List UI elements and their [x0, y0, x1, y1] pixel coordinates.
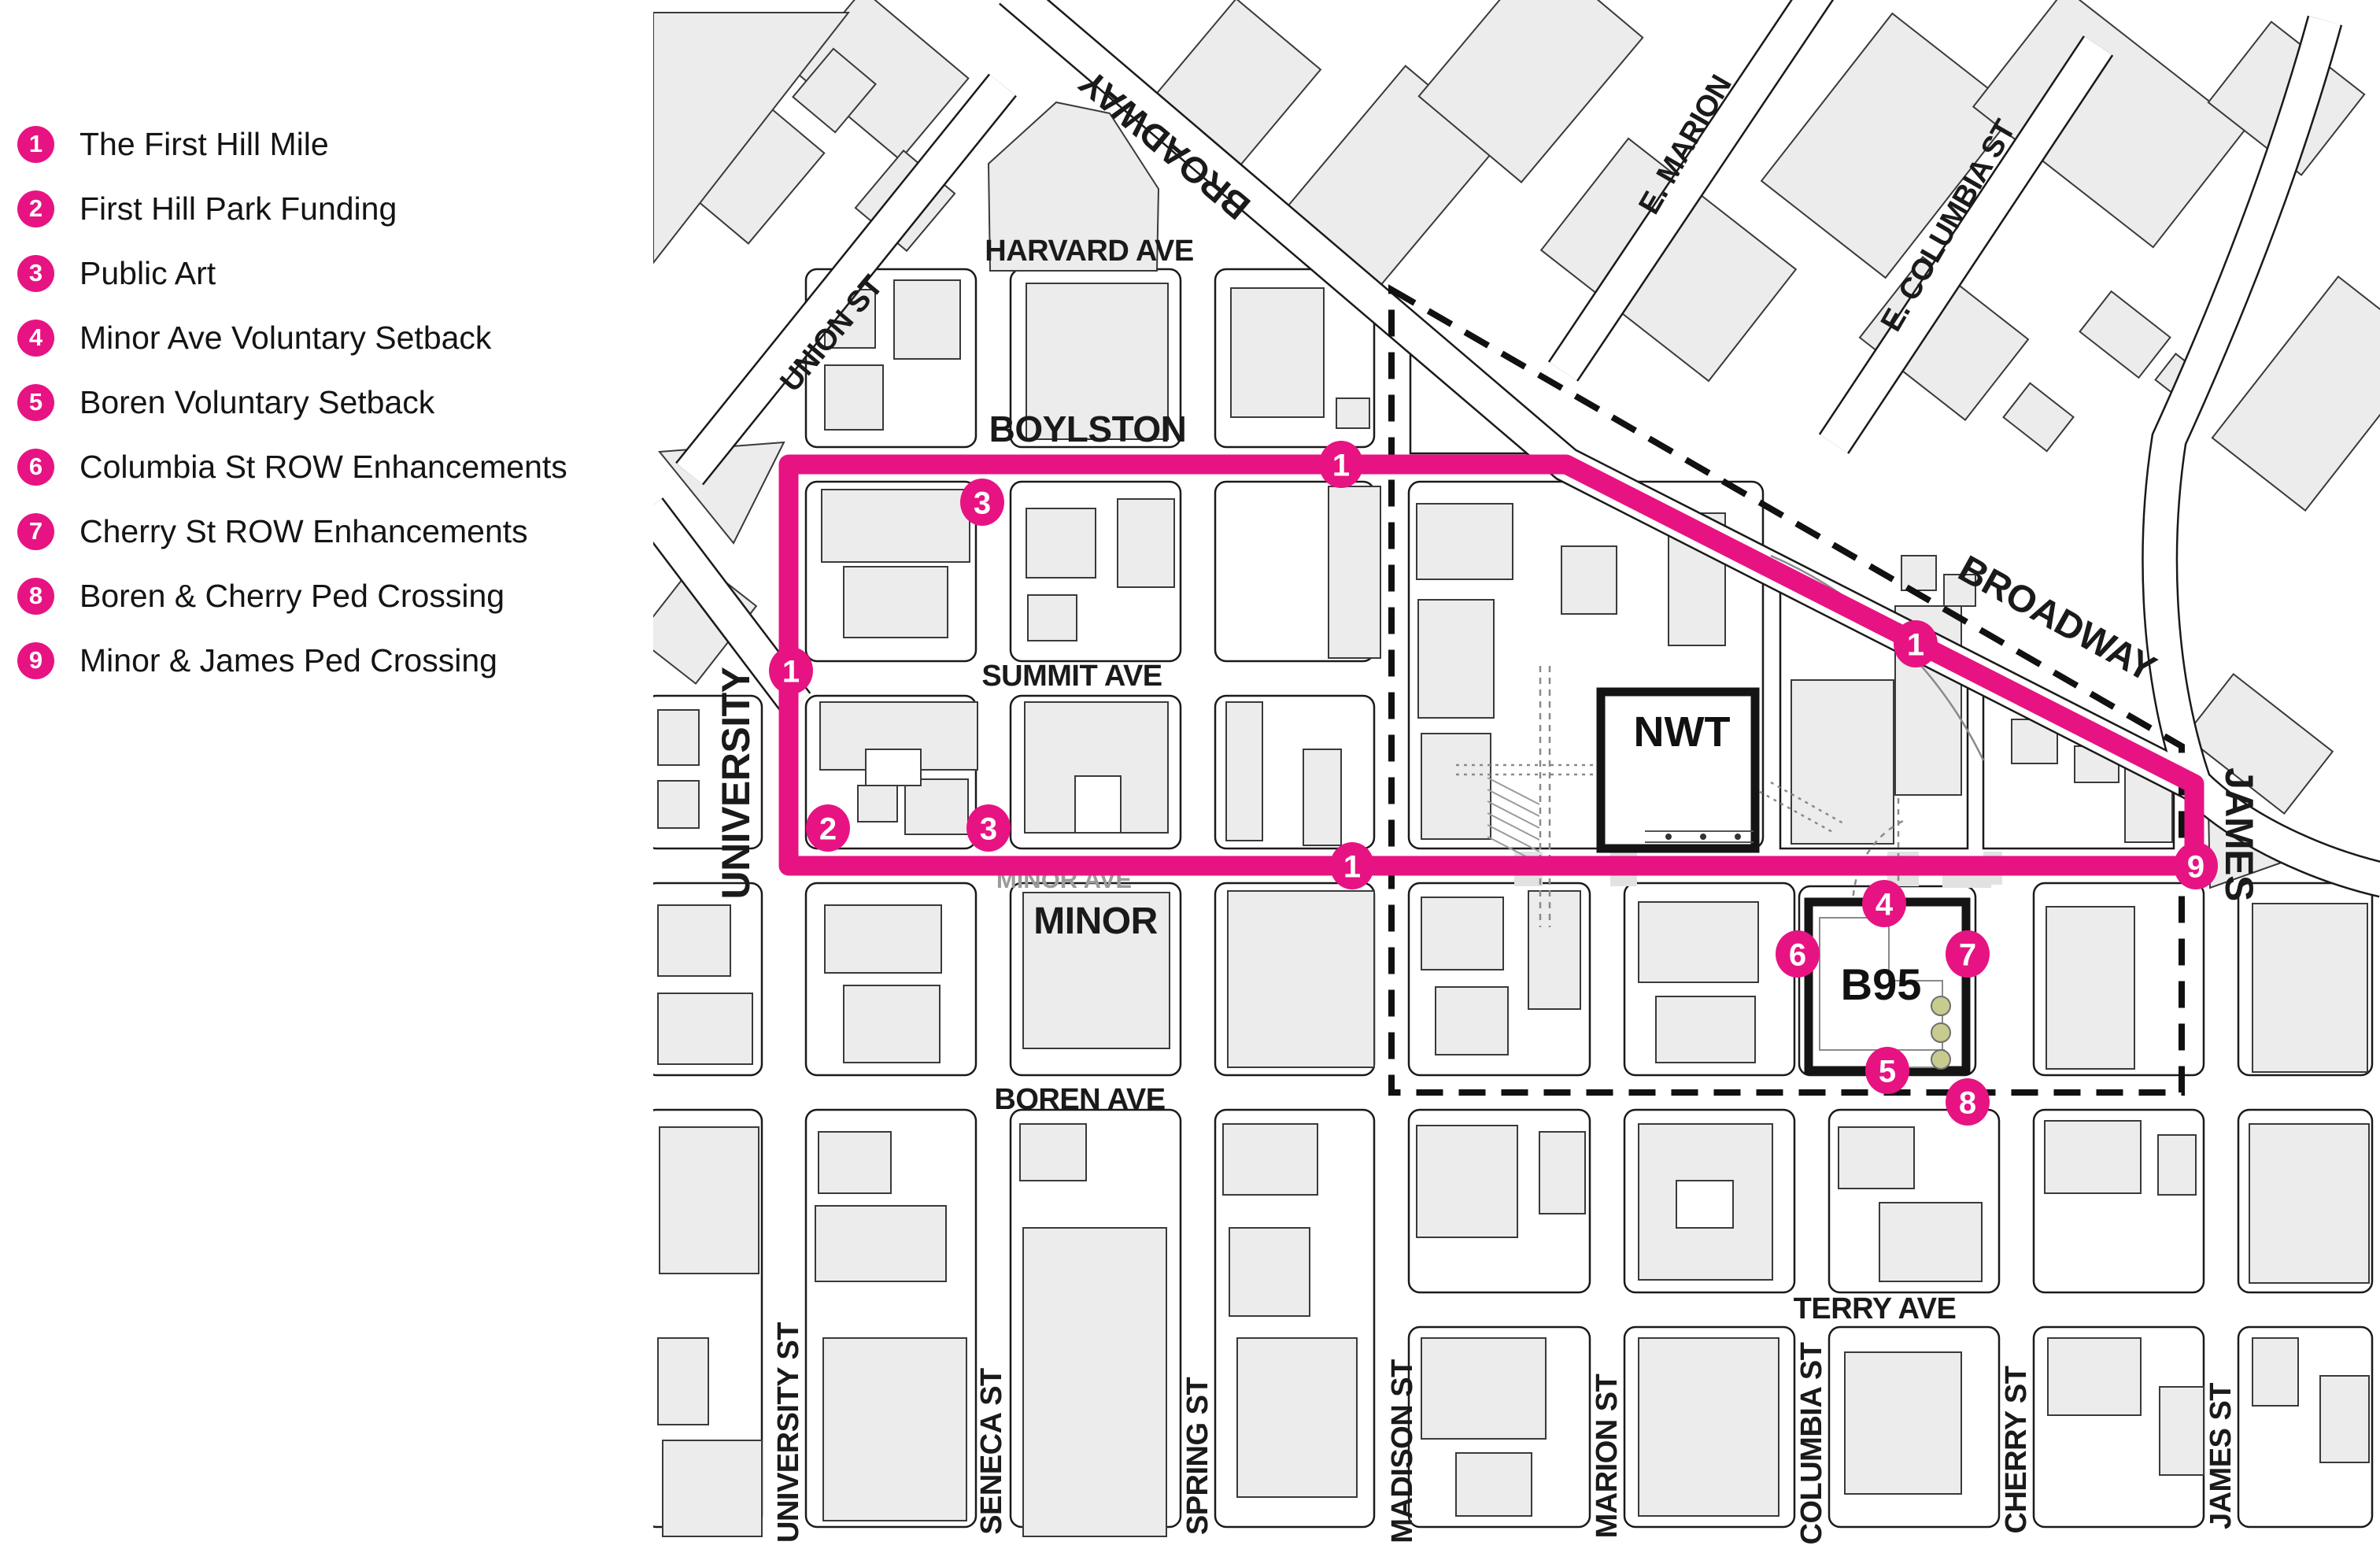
building [1226, 702, 1262, 841]
building [825, 365, 883, 430]
badge-number: 6 [1789, 937, 1806, 972]
building [658, 781, 699, 828]
building [1456, 1453, 1532, 1516]
building [2252, 1338, 2298, 1406]
building [1973, 0, 2245, 247]
building [1421, 897, 1503, 970]
map-badge-1: 1 [1330, 842, 1374, 889]
map-badge-1: 1 [1319, 441, 1363, 488]
street-label-minor: MINOR [1033, 900, 1157, 942]
building [1561, 546, 1617, 614]
building [844, 567, 948, 638]
map-badge-1: 1 [1894, 620, 1938, 667]
badge-number: 3 [980, 811, 997, 846]
building [1791, 680, 1894, 844]
building [658, 1338, 708, 1425]
building [658, 905, 730, 976]
building [1417, 504, 1513, 579]
street-label-columbia-st: COLUMBIA ST [1795, 1342, 1828, 1544]
building-courtyard [866, 749, 921, 786]
building [1223, 1124, 1317, 1195]
badge-number: 9 [2187, 849, 2204, 884]
building [823, 1338, 966, 1521]
street-label-boren-ave: BOREN AVE [994, 1083, 1165, 1116]
street-label-terry-ave: TERRY AVE [1794, 1292, 1957, 1325]
street-label-james-st: JAMES ST [2204, 1383, 2238, 1529]
map-badge-6: 6 [1776, 930, 1820, 978]
map-root: BOYLSTON AVEMINOR AVENWTB95BROADWAYHARVA… [637, 0, 2380, 1544]
nwt-detail-dot [1735, 834, 1741, 840]
building [858, 786, 897, 822]
building [1231, 288, 1324, 417]
street-label-summit-ave: SUMMIT AVE [981, 660, 1162, 693]
b95-label: B95 [1841, 959, 1922, 1009]
building [822, 490, 970, 562]
street-label-spring-st: SPRING ST [1181, 1377, 1214, 1536]
building [1329, 486, 1380, 658]
tree-dot [1931, 996, 1950, 1015]
map-badge-4: 4 [1862, 880, 1906, 927]
street-label-harvard-ave: HARVARD AVE [985, 235, 1193, 268]
building [1228, 891, 1374, 1067]
building [1436, 987, 1508, 1055]
map-badge-8: 8 [1946, 1078, 1990, 1126]
building [1026, 508, 1096, 578]
building [1656, 996, 1755, 1063]
building [1639, 902, 1758, 982]
badge-number: 1 [1907, 627, 1924, 662]
building [658, 710, 699, 765]
badge-number: 7 [1959, 937, 1976, 972]
map-canvas: BOYLSTON AVEMINOR AVENWTB95BROADWAYHARVA… [0, 0, 2380, 1545]
map-badge-3: 3 [960, 479, 1004, 526]
building [1237, 1338, 1357, 1497]
building-courtyard [1075, 776, 1121, 833]
nwt-detail-dot [1700, 834, 1706, 840]
building [905, 779, 968, 834]
building [1303, 749, 1341, 845]
badge-number: 1 [1343, 849, 1361, 884]
building [1639, 1338, 1779, 1516]
nwt-detail-dot [1665, 834, 1672, 840]
building [1845, 1352, 1961, 1494]
badge-number: 5 [1879, 1054, 1896, 1089]
building [1421, 1338, 1546, 1439]
tree-dot [1931, 1050, 1950, 1069]
building [1421, 734, 1491, 839]
building [2252, 904, 2367, 1072]
building [663, 1440, 762, 1536]
building [894, 280, 960, 359]
badge-number: 4 [1876, 887, 1894, 922]
building [1229, 1228, 1310, 1316]
building [1901, 556, 1936, 590]
building [2080, 291, 2171, 378]
building [2158, 1135, 2196, 1195]
building-courtyard [1676, 1181, 1733, 1228]
street-label-marion-st: MARION ST [1591, 1373, 1624, 1538]
street-label-university: UNIVERSITY [714, 667, 758, 899]
street-label-james: JAMES [2217, 767, 2261, 901]
building [1839, 1127, 1914, 1189]
badge-number: 1 [782, 654, 800, 689]
building [2320, 1376, 2369, 1462]
street-label-university-st: UNIVERSITY ST [772, 1322, 805, 1543]
map-badge-9: 9 [2174, 842, 2218, 889]
building [2045, 1121, 2141, 1193]
street-label-cherry-st: CHERRY ST [2000, 1366, 2033, 1533]
badge-number: 3 [974, 486, 991, 520]
building [1879, 1203, 1982, 1281]
building [658, 993, 752, 1064]
building [1528, 891, 1580, 1009]
building [1023, 1228, 1166, 1536]
building [660, 1127, 759, 1274]
building [1020, 1124, 1086, 1181]
building [844, 985, 940, 1063]
building [1539, 1132, 1585, 1214]
street-label-boylston: BOYLSTON [989, 409, 1187, 449]
building [815, 1206, 946, 1281]
badge-number: 1 [1332, 448, 1350, 482]
building [2160, 1387, 2204, 1475]
building [819, 1132, 891, 1193]
map-badge-2: 2 [806, 804, 850, 852]
map-badge-3: 3 [966, 804, 1011, 852]
badge-number: 2 [819, 811, 837, 846]
building [825, 905, 941, 973]
street-label-seneca-st: SENECA ST [975, 1368, 1008, 1535]
building [1028, 595, 1077, 641]
building [2003, 383, 2073, 451]
badge-number: 8 [1959, 1085, 1976, 1120]
building [1118, 499, 1174, 587]
nwt-label: NWT [1634, 708, 1731, 756]
map-badge-5: 5 [1865, 1047, 1909, 1094]
building [1336, 398, 1369, 428]
building [1418, 600, 1494, 718]
map-badge-7: 7 [1946, 930, 1990, 978]
page: 1The First Hill Mile2First Hill Park Fun… [0, 0, 2380, 1545]
building [2048, 1338, 2141, 1415]
building [2249, 1124, 2369, 1283]
map-wrap: BOYLSTON AVEMINOR AVENWTB95BROADWAYHARVA… [0, 0, 2380, 1545]
tree-dot [1931, 1023, 1950, 1042]
building [2046, 907, 2134, 1069]
map-badge-1: 1 [769, 647, 813, 694]
building [1417, 1126, 1517, 1237]
street-label-madison-st: MADISON ST [1386, 1359, 1419, 1543]
